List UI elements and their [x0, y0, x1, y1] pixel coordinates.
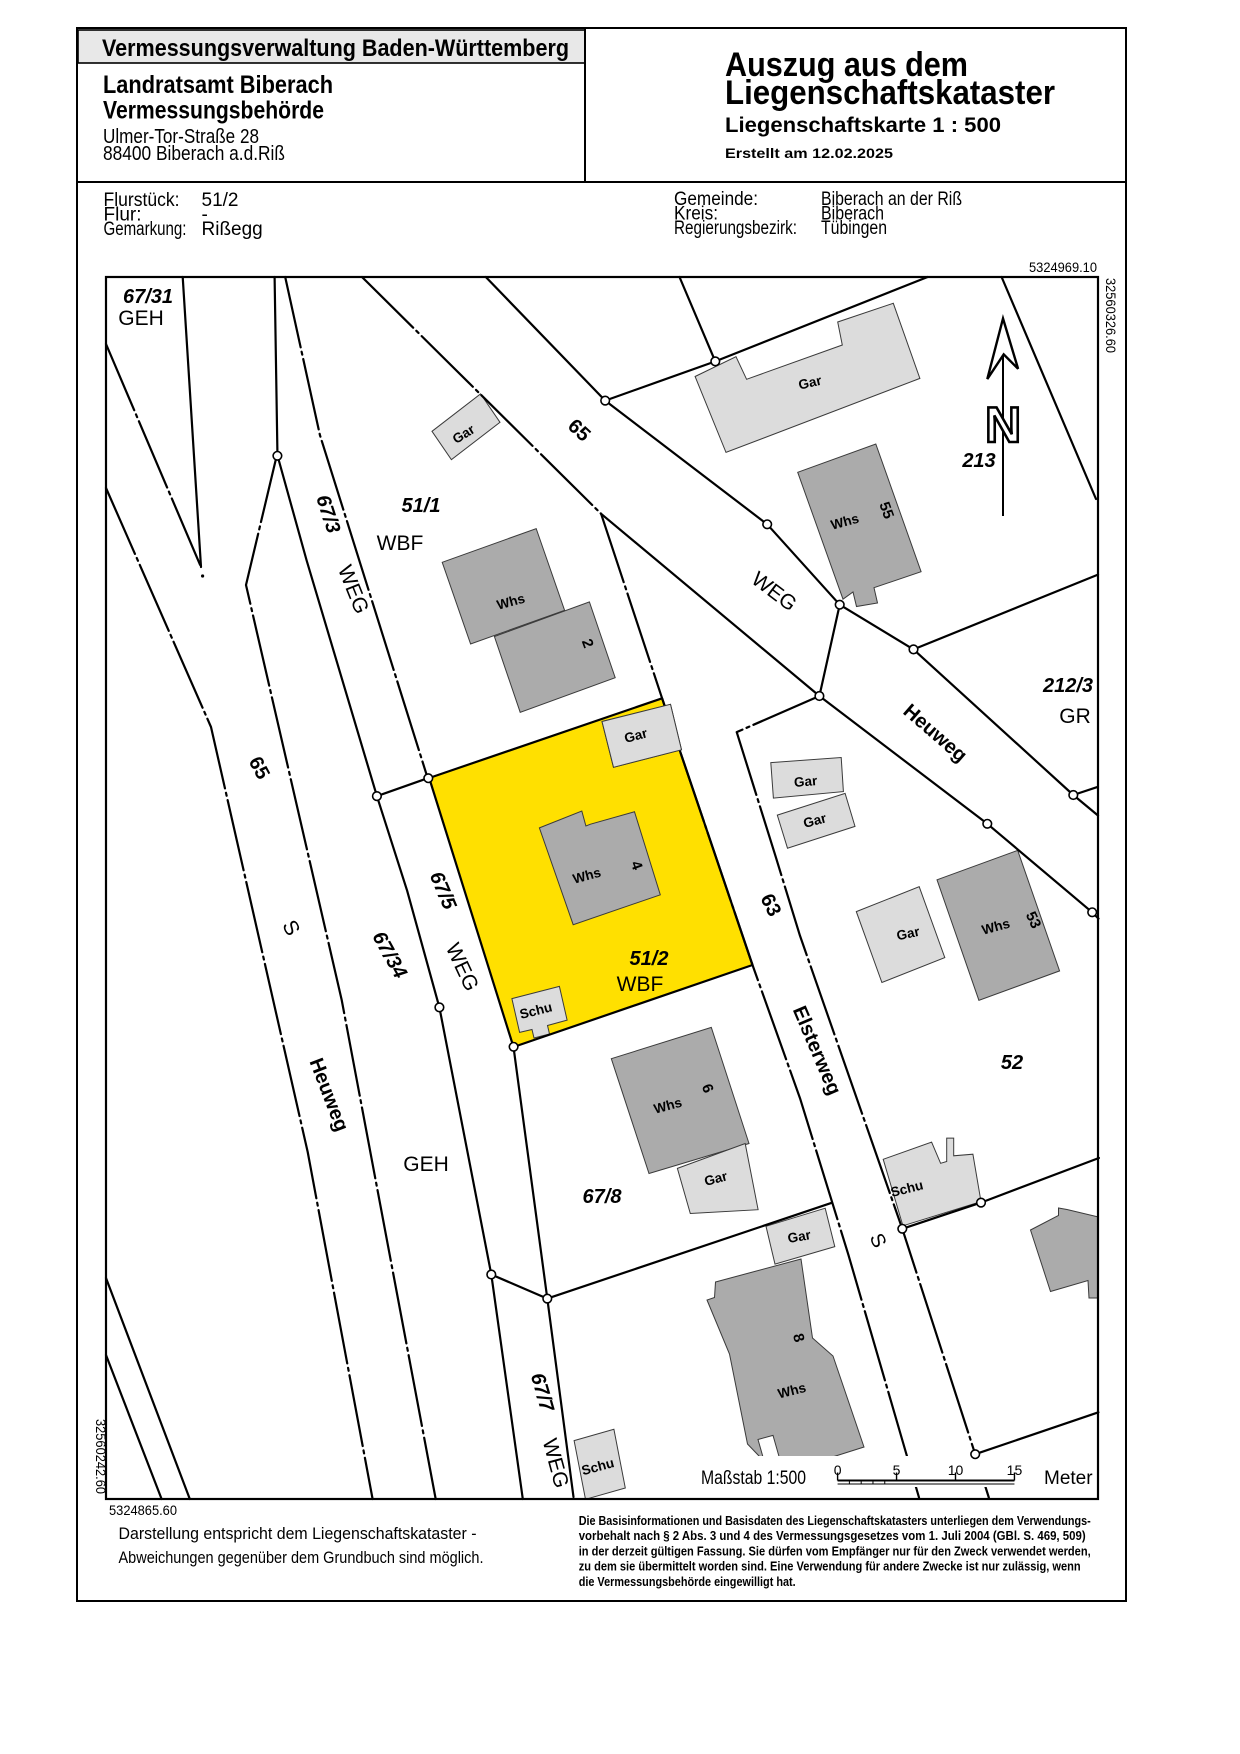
svg-text:GEH: GEH	[118, 307, 164, 330]
svg-text:Landratsamt Biberach: Landratsamt Biberach	[103, 71, 333, 99]
svg-text:zu dem sie übermittelt worden: zu dem sie übermittelt worden sind. Eine…	[579, 1560, 1081, 1574]
svg-text:213: 213	[961, 450, 995, 472]
svg-text:67/8: 67/8	[583, 1186, 623, 1208]
svg-text:Meter: Meter	[1044, 1468, 1093, 1489]
svg-text:Vermessungsbehörde: Vermessungsbehörde	[103, 97, 324, 125]
svg-text:51/1: 51/1	[402, 495, 441, 517]
svg-text:in der derzeit gültigen Fassun: in der derzeit gültigen Fassung. Sie dür…	[579, 1544, 1091, 1558]
svg-text:Regierungsbezirk:: Regierungsbezirk:	[674, 218, 797, 239]
svg-text:N: N	[985, 397, 1021, 453]
svg-text:GEH: GEH	[403, 1153, 449, 1176]
svg-text:Erstellt am 12.02.2025: Erstellt am 12.02.2025	[725, 145, 893, 161]
svg-text:15: 15	[1007, 1462, 1023, 1478]
svg-text:die Vermessungsbehörde eingewi: die Vermessungsbehörde eingewilligt hat.	[579, 1575, 796, 1589]
svg-text:88400 Biberach a.d.Riß: 88400 Biberach a.d.Riß	[103, 143, 285, 165]
svg-text:Vermessungsverwaltung Baden-Wü: Vermessungsverwaltung Baden-Württemberg	[102, 35, 569, 62]
svg-text:5324969.10: 5324969.10	[1029, 259, 1097, 275]
svg-text:vorbehalt nach § 2 Abs. 3 und: vorbehalt nach § 2 Abs. 3 und 4 des Verm…	[579, 1529, 1086, 1543]
svg-text:0: 0	[834, 1462, 842, 1478]
svg-text:Die Basisinformationen und Bas: Die Basisinformationen und Basisdaten de…	[579, 1514, 1091, 1528]
svg-text:WBF: WBF	[617, 973, 664, 996]
svg-text:51/2: 51/2	[630, 948, 669, 970]
svg-text:Abweichungen gegenüber dem Gru: Abweichungen gegenüber dem Grundbuch sin…	[119, 1548, 484, 1567]
svg-text:52: 52	[1001, 1052, 1023, 1074]
svg-text:67/31: 67/31	[123, 286, 173, 308]
svg-text:Liegenschaftskataster: Liegenschaftskataster	[725, 74, 1055, 112]
svg-text:Darstellung entspricht dem Lie: Darstellung entspricht dem Liegenschafts…	[119, 1524, 477, 1543]
svg-text:5324865.60: 5324865.60	[109, 1502, 177, 1518]
svg-text:10: 10	[948, 1462, 964, 1478]
svg-text:Maßstab 1:500: Maßstab 1:500	[701, 1468, 806, 1489]
svg-text:212/3: 212/3	[1042, 675, 1093, 697]
svg-text:GR: GR	[1059, 705, 1091, 728]
svg-text:32560326.60: 32560326.60	[1103, 278, 1119, 353]
svg-text:WBF: WBF	[377, 532, 424, 555]
svg-text:5: 5	[893, 1462, 901, 1478]
svg-text:Tübingen: Tübingen	[821, 218, 887, 239]
svg-text:Rißegg: Rißegg	[202, 219, 263, 240]
svg-text:Gemarkung:: Gemarkung:	[104, 219, 187, 240]
svg-text:Gar: Gar	[793, 773, 818, 790]
svg-text:Liegenschaftskarte 1 : 500: Liegenschaftskarte 1 : 500	[725, 114, 1001, 137]
